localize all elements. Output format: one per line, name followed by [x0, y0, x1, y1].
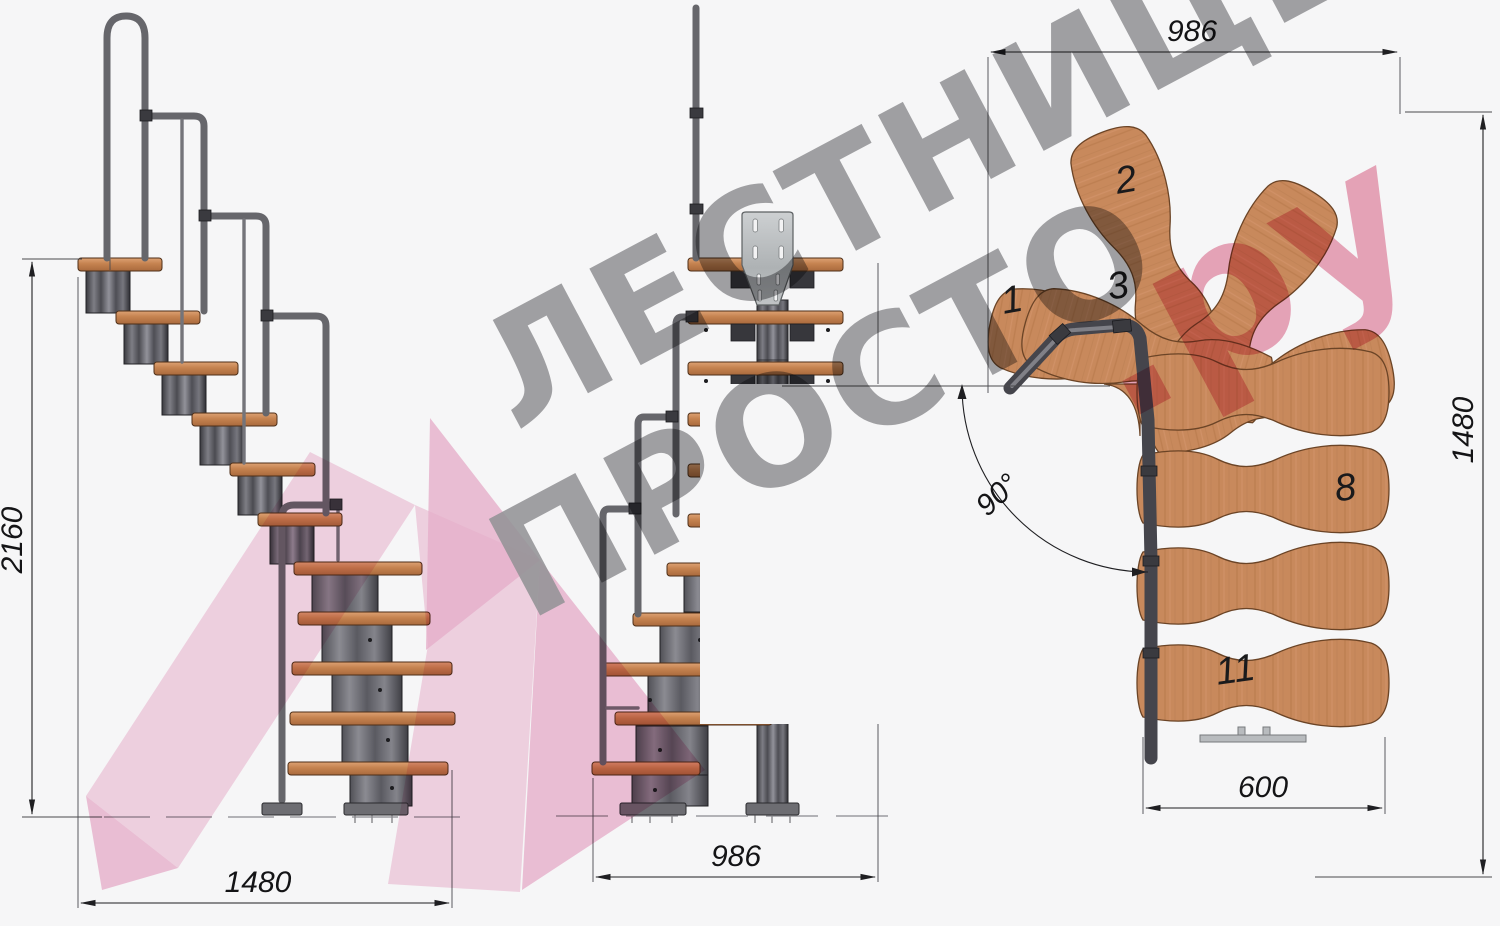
side-length-value: 1480 — [225, 866, 292, 899]
drawing-canvas: 2160 1480 — [0, 0, 1500, 926]
side-height-value: 2160 — [0, 506, 29, 574]
dimension-plan-bottom: 600 — [1143, 737, 1385, 814]
front-width-value: 986 — [711, 840, 761, 873]
plan-tread-10 — [1137, 542, 1389, 629]
side-rail-base-flange — [262, 803, 302, 815]
drawing-sheet: 2160 1480 — [0, 0, 1500, 926]
handrail-section-2 — [208, 216, 266, 413]
plan-bottom-value: 600 — [1238, 771, 1288, 804]
handrail-section-1 — [148, 116, 204, 311]
handrail-top-loop — [107, 16, 145, 258]
side-module-base-flange — [344, 803, 408, 815]
plan-tread-11 — [1137, 639, 1389, 726]
plan-wall-bracket — [1200, 727, 1306, 742]
plan-right-value: 1480 — [1447, 396, 1480, 463]
plan-label-11: 11 — [1213, 647, 1258, 694]
dimension-side-height: 2160 — [0, 259, 102, 817]
front-pole-flange — [746, 803, 799, 815]
